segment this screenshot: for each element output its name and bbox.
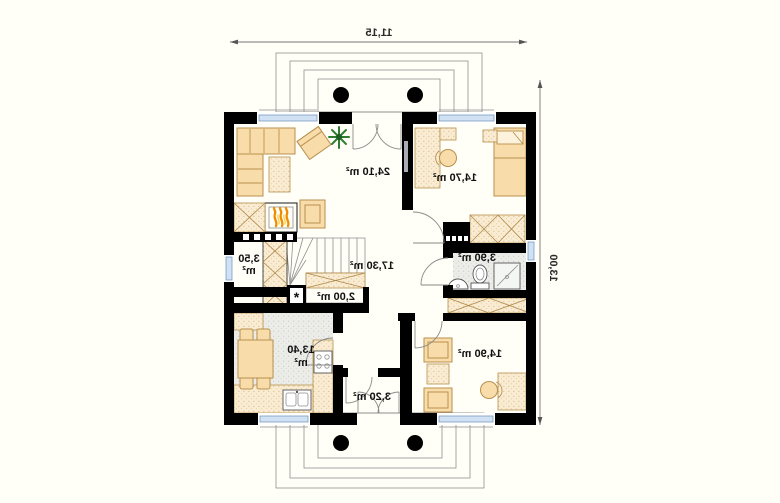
dimension-depth: 13,00 (538, 80, 559, 425)
dimension-width: 11,15 (230, 27, 527, 44)
porch-column (333, 435, 349, 451)
porch-column (407, 435, 423, 451)
dining-chair (257, 329, 270, 341)
kitchen-sink (283, 390, 311, 410)
dimension-width-label: 11,15 (366, 27, 393, 39)
dining-chair (240, 329, 253, 341)
bedroom-wardrobe (470, 215, 525, 243)
window-living-top (257, 110, 319, 124)
window-storage-side (224, 255, 234, 282)
wall-grille-fireplace (234, 232, 297, 242)
wall-grille-bedroom (443, 222, 470, 243)
dining-chair (240, 377, 253, 389)
dining-chair (257, 377, 270, 389)
room2-armchair-bottom (424, 388, 452, 412)
stove (314, 351, 332, 373)
room-label-storage-line1: 3,50 (238, 253, 259, 265)
armchair-fireplace (300, 200, 325, 228)
room-label-bathroom: 3,90 m² (458, 252, 496, 264)
room-label-room2: 14,90 m² (458, 348, 502, 360)
fireplace (265, 203, 297, 232)
room-label-living: 24,10 m² (346, 166, 390, 178)
window-room2-bottom (437, 413, 495, 427)
tv-panel (404, 141, 408, 172)
dimension-depth-label: 13,00 (547, 254, 559, 282)
room-label-kitchen-line1: 13,40 (287, 344, 315, 356)
mirrored-plan-group: 11,15 13,00 (224, 27, 559, 488)
room-label-storage-line2: m² (242, 265, 256, 277)
porch-column (333, 87, 349, 103)
porch-top (276, 53, 482, 112)
door-terrace (353, 124, 401, 149)
window-bedroom-top (437, 110, 496, 124)
bedroom-desk-return (440, 128, 456, 140)
plant-icon (329, 127, 349, 148)
door-bathroom (421, 258, 448, 285)
porch-column (407, 87, 423, 103)
rug (269, 157, 290, 192)
bed (494, 128, 526, 196)
hall-wardrobe (448, 298, 530, 313)
floor-plan-canvas: 11,15 13,00 (0, 0, 780, 503)
utility-marker: * (293, 289, 299, 305)
room-label-closet: 2,00 m² (317, 291, 355, 303)
armchair-angled (297, 127, 331, 160)
bedside-table (483, 130, 497, 142)
room2-armchair-top (424, 338, 452, 362)
room-label-kitchen-line2: m² (294, 357, 308, 369)
coffee-table (427, 364, 449, 384)
window-kitchen-bottom (258, 413, 310, 427)
room-label-vestibule: 3,20 m² (353, 391, 391, 403)
fireplace-side-cabinet (234, 203, 265, 232)
window-bathroom-side (526, 240, 536, 262)
floor-plan-svg: 11,15 13,00 (0, 0, 780, 503)
door-bedroom (413, 212, 444, 243)
room-label-hall: 17,30 m² (350, 260, 394, 272)
room-label-bedroom: 14,70 m² (433, 172, 477, 184)
shower (494, 263, 520, 289)
kitchen-cabinet (234, 313, 263, 330)
